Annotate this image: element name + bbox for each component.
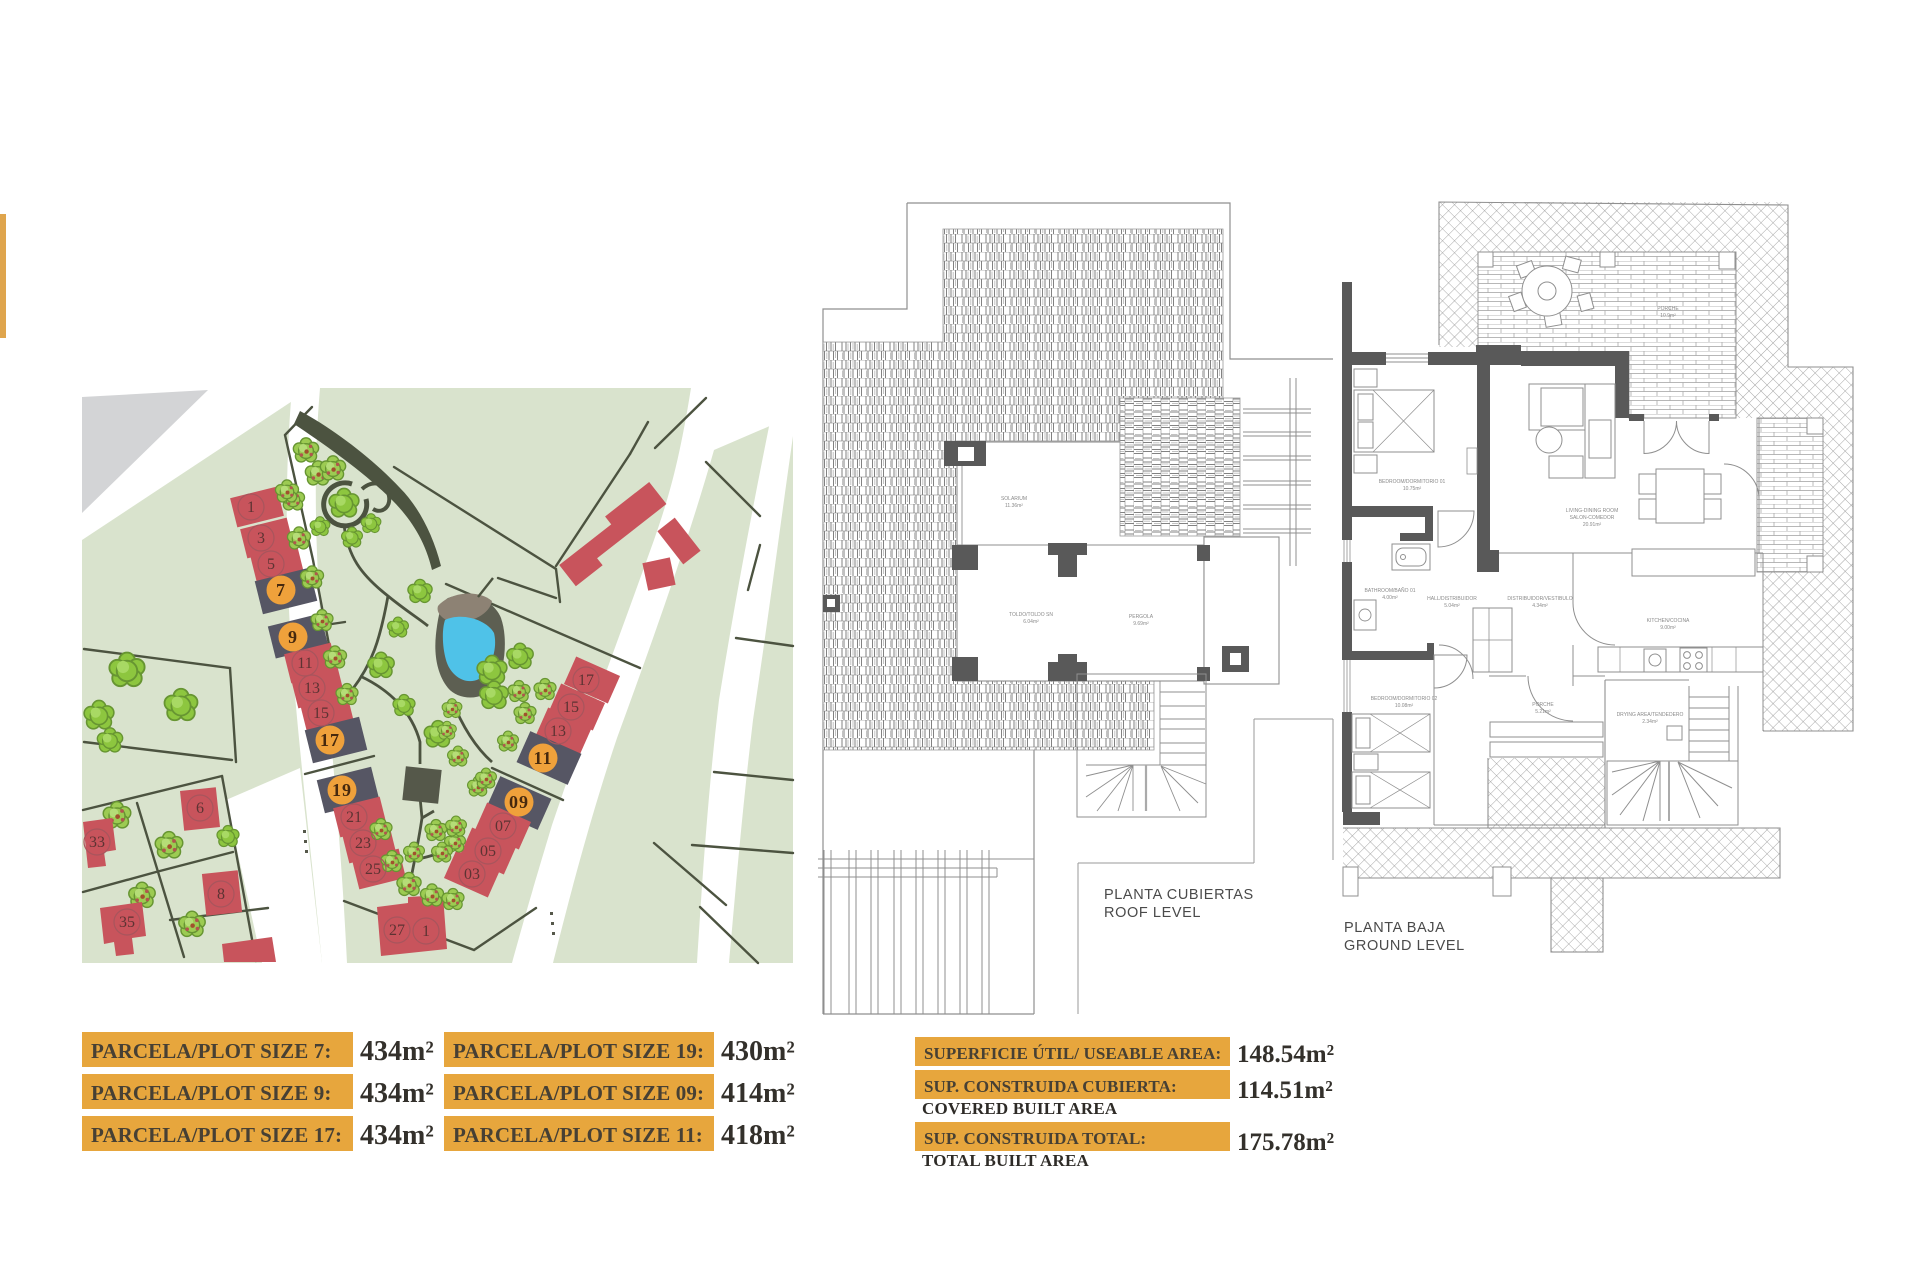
svg-text:DRYING AREA/TENDEDERO: DRYING AREA/TENDEDERO [1617,712,1684,718]
svg-text:PLANTA BAJA: PLANTA BAJA [1344,920,1445,936]
svg-text:4.34m²: 4.34m² [1532,603,1548,609]
svg-text:19: 19 [332,780,352,800]
svg-text:PARCELA/PLOT SIZE 17:: PARCELA/PLOT SIZE 17: [91,1123,342,1147]
svg-text:PARCELA/PLOT SIZE 09:: PARCELA/PLOT SIZE 09: [453,1081,704,1105]
svg-text:TOTAL BUILT AREA: TOTAL BUILT AREA [922,1151,1090,1170]
svg-text:418m²: 418m² [721,1120,795,1151]
svg-text:17: 17 [578,672,594,689]
svg-text:148.54m²: 148.54m² [1237,1041,1334,1068]
svg-text:414m²: 414m² [721,1078,795,1109]
svg-text:BEDROOM/DORMITORIO 01: BEDROOM/DORMITORIO 01 [1379,479,1446,485]
svg-text:11: 11 [533,748,552,768]
svg-text:COVERED BUILT AREA: COVERED BUILT AREA [922,1099,1118,1118]
svg-text:SUP. CONSTRUIDA TOTAL:: SUP. CONSTRUIDA TOTAL: [924,1129,1146,1148]
svg-text:TOLDO/TOLDO SN: TOLDO/TOLDO SN [1009,612,1053,618]
svg-text:PERGOLA: PERGOLA [1129,614,1154,620]
svg-text:9.00m²: 9.00m² [1660,625,1676,631]
svg-text:10.9m²: 10.9m² [1660,313,1676,319]
svg-text:BEDROOM/DORMITORIO 02: BEDROOM/DORMITORIO 02 [1371,696,1438,702]
svg-text:1: 1 [247,499,255,516]
svg-text:27: 27 [389,922,405,939]
svg-text:13: 13 [550,723,566,740]
svg-text:33: 33 [89,834,105,851]
svg-text:SUPERFICIE ÚTIL/ USEABLE AREA:: SUPERFICIE ÚTIL/ USEABLE AREA: [924,1044,1221,1063]
svg-text:PARCELA/PLOT SIZE 11:: PARCELA/PLOT SIZE 11: [453,1123,703,1147]
svg-text:SALON-COMEDOR: SALON-COMEDOR [1570,515,1615,521]
svg-text:3: 3 [257,530,265,547]
svg-text:15: 15 [563,699,579,716]
svg-text:25: 25 [365,861,381,878]
svg-text:6: 6 [196,800,204,817]
svg-text:430m²: 430m² [721,1036,795,1067]
svg-text:6.04m²: 6.04m² [1023,619,1039,625]
svg-text:BATHROOM/BAÑO 01: BATHROOM/BAÑO 01 [1364,587,1415,594]
svg-text:434m²: 434m² [360,1078,434,1109]
svg-text:PLANTA CUBIERTAS: PLANTA CUBIERTAS [1104,887,1254,903]
svg-text:114.51m²: 114.51m² [1237,1077,1333,1104]
svg-text:PORCHE: PORCHE [1657,306,1679,312]
svg-text:5.04m²: 5.04m² [1444,603,1460,609]
svg-text:GROUND LEVEL: GROUND LEVEL [1344,938,1465,954]
svg-text:KITCHEN/COCINA: KITCHEN/COCINA [1647,618,1690,624]
svg-text:SUP. CONSTRUIDA CUBIERTA:: SUP. CONSTRUIDA CUBIERTA: [924,1077,1177,1096]
svg-text:11.36m²: 11.36m² [1005,503,1023,509]
svg-text:5: 5 [267,556,275,573]
svg-text:03: 03 [464,866,480,883]
svg-text:PORCHE: PORCHE [1532,702,1554,708]
svg-text:SOLARIUM: SOLARIUM [1001,496,1027,502]
svg-text:35: 35 [119,914,135,931]
svg-text:2.34m²: 2.34m² [1642,719,1658,725]
svg-text:13: 13 [304,680,320,697]
svg-text:9.69m²: 9.69m² [1133,621,1149,627]
svg-text:1: 1 [422,923,430,940]
svg-text:11: 11 [297,655,312,672]
svg-text:434m²: 434m² [360,1120,434,1151]
svg-text:175.78m²: 175.78m² [1237,1129,1334,1156]
svg-text:434m²: 434m² [360,1036,434,1067]
svg-text:7: 7 [276,580,286,600]
svg-text:PARCELA/PLOT SIZE 19:: PARCELA/PLOT SIZE 19: [453,1039,704,1063]
svg-text:HALL/DISTRIBUIDOR: HALL/DISTRIBUIDOR [1427,596,1477,602]
svg-text:LIVING-DINING ROOM: LIVING-DINING ROOM [1566,508,1619,514]
svg-text:PARCELA/PLOT SIZE 7:: PARCELA/PLOT SIZE 7: [91,1039,331,1063]
svg-text:05: 05 [480,843,496,860]
svg-text:07: 07 [495,818,511,835]
svg-text:8: 8 [217,886,225,903]
svg-text:ROOF LEVEL: ROOF LEVEL [1104,905,1201,921]
svg-text:PARCELA/PLOT SIZE 9:: PARCELA/PLOT SIZE 9: [91,1081,331,1105]
svg-text:9: 9 [288,627,298,647]
svg-text:09: 09 [509,792,529,812]
svg-text:10.75m²: 10.75m² [1403,486,1422,492]
svg-text:15: 15 [313,705,329,722]
svg-text:23: 23 [355,835,371,852]
svg-text:10.08m²: 10.08m² [1395,703,1414,709]
svg-text:20.91m²: 20.91m² [1583,522,1602,528]
svg-text:21: 21 [346,809,362,826]
svg-text:5.21m²: 5.21m² [1535,709,1551,715]
svg-text:DISTRIBUIDOR/VESTIBULO: DISTRIBUIDOR/VESTIBULO [1507,596,1572,602]
svg-text:17: 17 [320,730,340,750]
svg-text:4.00m²: 4.00m² [1382,595,1398,601]
